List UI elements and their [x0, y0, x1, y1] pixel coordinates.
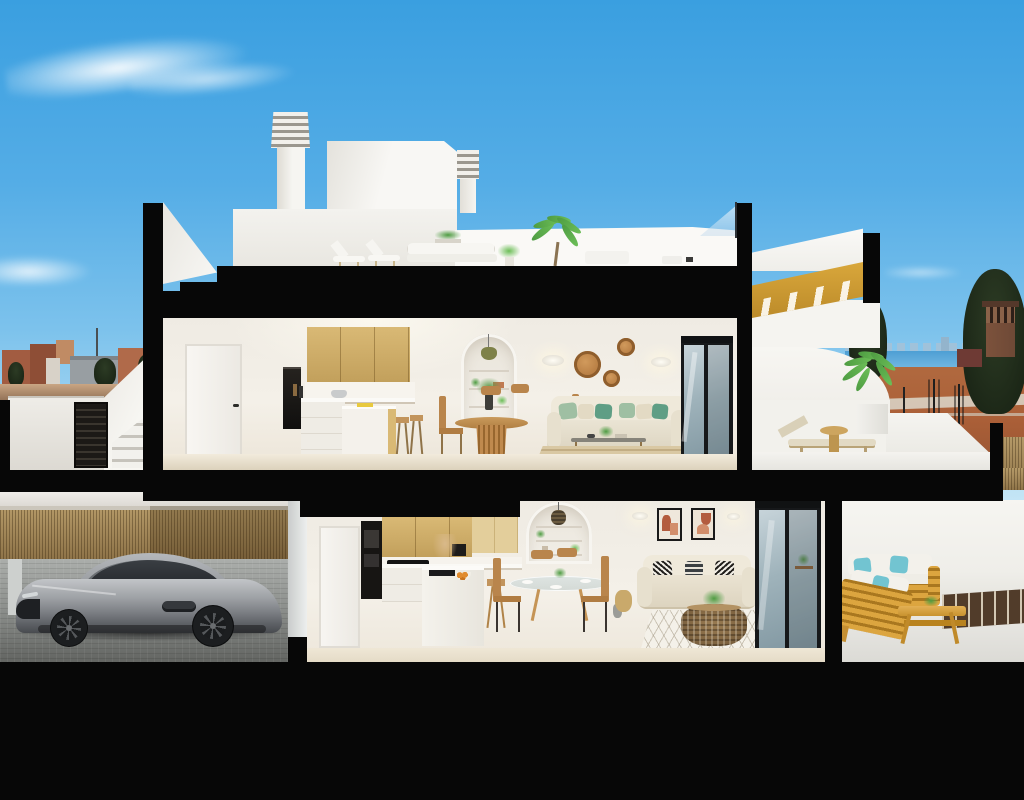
maroon-building — [957, 349, 982, 367]
sliding-glass-doors — [755, 500, 821, 665]
wall-sconce — [542, 355, 564, 366]
door-track-box — [681, 336, 733, 343]
sofa-pillow-teal — [651, 403, 668, 419]
island-yellow-book — [357, 403, 373, 407]
wicker-rim — [687, 604, 741, 611]
wicker-coffee-table — [681, 604, 747, 646]
interior-door — [319, 526, 360, 648]
bench-shelf — [904, 620, 966, 626]
garage-side-wall — [288, 500, 307, 637]
kitchen-upper-cabinets — [307, 327, 410, 382]
glass-pane — [789, 510, 817, 660]
villa-cross-section-rendering — [0, 0, 1024, 800]
rattan-wall-disc-large — [574, 351, 601, 378]
wicker-pendant-lamp — [551, 510, 566, 525]
table-leg — [531, 589, 541, 621]
aqua-pillow — [889, 555, 908, 574]
sofa-armrest — [637, 567, 652, 607]
street-lamp — [958, 384, 960, 424]
dining-chair-back — [481, 386, 501, 395]
chair-leg — [496, 602, 498, 632]
plant-foliage — [498, 244, 520, 258]
door-handle — [233, 404, 239, 407]
framed-artwork — [691, 508, 715, 540]
built-in-oven — [283, 367, 301, 429]
dining-chair — [577, 556, 609, 632]
dining-chair-back — [511, 384, 529, 393]
oven-window — [364, 530, 379, 548]
town-tree — [94, 358, 116, 386]
roof-outdoor-sofa — [407, 239, 497, 266]
town-antenna — [96, 328, 98, 358]
island-sink-inset — [429, 570, 455, 576]
bench-leg — [949, 612, 960, 644]
kitchen-base-cabinets — [382, 568, 424, 602]
roof-deck-table-far — [662, 256, 682, 264]
roof-stair-bulkhead — [327, 141, 457, 213]
car-wheel-front — [50, 609, 88, 647]
fruit-bowl — [455, 572, 471, 580]
pendant-cord — [488, 334, 489, 348]
kitchen-pot — [331, 390, 347, 398]
bench-leg — [900, 614, 911, 644]
dining-chair — [439, 396, 465, 460]
kitchen-stool — [410, 415, 423, 459]
town-tree — [8, 362, 24, 386]
niche-plant — [536, 530, 545, 538]
roof-lounger — [333, 236, 367, 266]
dining-chair-back — [557, 548, 577, 557]
pendant-lamp-green — [481, 347, 497, 360]
town-building-white — [46, 358, 60, 386]
ground-floor-interior — [307, 500, 825, 673]
chair-leg — [605, 602, 607, 632]
chair-leg — [583, 602, 585, 632]
table-plate — [522, 580, 533, 584]
kitchen-island — [422, 566, 484, 646]
sports-car — [16, 553, 288, 647]
cut-kitchen-bulkhead — [300, 500, 520, 517]
wall-sconce — [632, 512, 648, 520]
basket-decor — [615, 590, 632, 612]
chair-seat — [581, 596, 608, 602]
sofa-pillow-cream — [578, 404, 594, 419]
niche-shelf — [536, 540, 582, 542]
terrace-side-table — [820, 426, 848, 455]
rattan-wall-disc-small — [603, 370, 620, 387]
sliding-glass-door — [681, 336, 733, 470]
chimney-shaft-small — [460, 179, 476, 213]
watchtower-cabin — [986, 307, 1015, 323]
plant-behind-glass — [798, 554, 809, 565]
chimney-cap-small — [457, 150, 479, 179]
wall-sconce — [727, 513, 740, 520]
roof-deck-lounger-far — [585, 251, 629, 264]
car-side-intake — [162, 601, 196, 612]
side-table-base — [829, 432, 839, 454]
cut-wall-left — [143, 203, 163, 501]
door-track-box — [755, 500, 821, 508]
bench-plant — [924, 596, 938, 606]
terrace-reed-strip — [1002, 468, 1024, 490]
lounger-seat — [368, 255, 400, 261]
car-wheel-rear — [192, 605, 234, 647]
upper-floor-surface — [163, 454, 737, 470]
art-shape-terra — [697, 524, 709, 534]
upper-floor-interior — [163, 318, 737, 470]
chimney-shaft — [277, 147, 305, 213]
dining-chair-back — [531, 550, 553, 559]
glass-pane — [708, 345, 729, 466]
kitchen-upper-cabinets-light — [472, 517, 518, 553]
console-behind-glass — [795, 566, 813, 569]
framed-artwork — [657, 508, 682, 541]
plant-pot — [505, 257, 514, 266]
sofa-armrest — [547, 412, 561, 448]
wheel-hub — [66, 625, 72, 631]
side-table-top — [820, 426, 848, 435]
sofa-pillow-sage — [619, 403, 635, 418]
watchtower-body — [986, 323, 1015, 357]
cut-bar-roof-stair — [863, 233, 880, 303]
niche-shelf — [469, 370, 509, 372]
roof-lounger — [368, 234, 402, 266]
bamboo-fence-shadow — [150, 506, 288, 559]
niche-plant — [497, 396, 507, 405]
kitchen-bottles — [293, 384, 297, 396]
lounger-seat — [333, 256, 365, 262]
cut-roof-slab — [217, 266, 737, 318]
cut-roof-slab-step — [180, 282, 217, 318]
art-shape-terra — [670, 523, 678, 535]
table-plant — [599, 426, 613, 437]
cut-bar-terrace-right — [990, 423, 1003, 501]
wheel-hub — [210, 623, 216, 629]
cut-roof-slab-step — [163, 291, 180, 318]
garage — [0, 473, 307, 664]
roof-deck-object — [686, 257, 693, 262]
teak-bench-table — [894, 598, 970, 650]
oven-window — [364, 554, 379, 567]
cloud-puff-left — [0, 255, 95, 285]
sofa-pillow-teal — [594, 403, 612, 419]
cut-ground-slab — [0, 662, 1024, 800]
cut-bar-upper-right — [737, 203, 752, 501]
oven-tower — [361, 521, 382, 599]
sofa-pillow-sage — [558, 402, 578, 420]
cut-mid-slab-left — [0, 470, 165, 492]
sofa-seat — [407, 254, 497, 262]
cut-wall-lower-right — [825, 500, 842, 672]
wall-sconce — [651, 357, 671, 367]
teak-leg — [842, 625, 849, 642]
niche-shelf — [536, 526, 582, 528]
palm-trunk — [554, 242, 560, 266]
sofa-pillow-cream — [635, 403, 653, 419]
car-front-grille — [16, 599, 40, 619]
table-plate — [550, 585, 562, 589]
roof-potted-plant — [498, 244, 522, 266]
chimney-cap — [271, 112, 310, 148]
cut-edge-street-left — [0, 400, 10, 473]
slatted-gate — [74, 402, 108, 468]
cut-mid-slab — [160, 470, 1003, 501]
table-glass-top — [571, 438, 646, 442]
distant-highrise — [941, 337, 949, 352]
dining-vase — [485, 394, 493, 410]
rattan-wall-disc — [617, 338, 635, 356]
table-centerpiece — [554, 568, 566, 578]
kitchen-stool — [396, 417, 409, 459]
terrace-palm — [838, 350, 900, 408]
teak-armrest — [928, 566, 940, 600]
roof-palm — [529, 216, 585, 266]
